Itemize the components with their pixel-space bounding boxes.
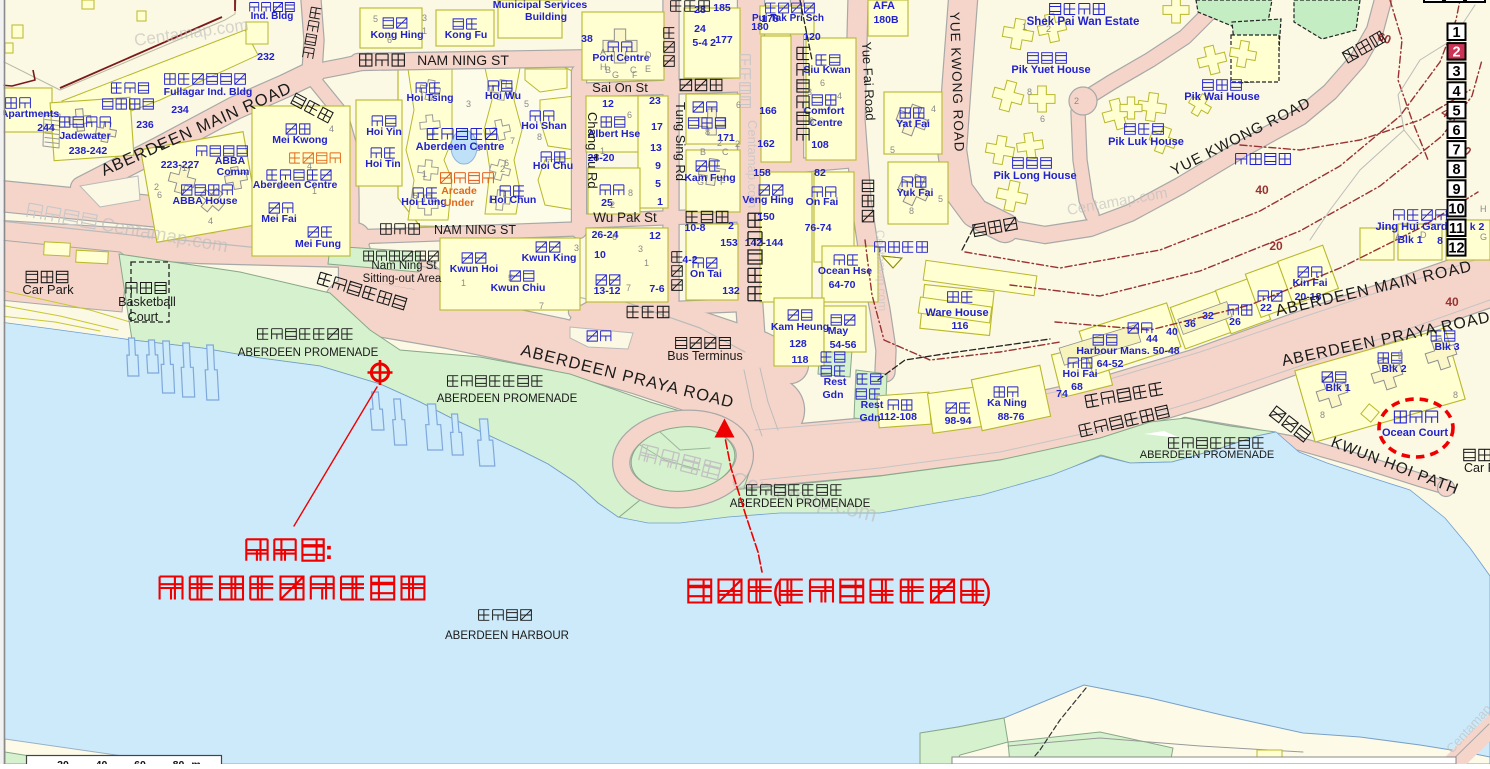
svg-text:112-108: 112-108 [879, 411, 917, 423]
svg-text:Centre: Centre [809, 117, 842, 129]
svg-text:8: 8 [705, 127, 710, 137]
svg-text:Rest: Rest [824, 376, 847, 388]
svg-text:98-94: 98-94 [945, 415, 972, 427]
svg-text:12: 12 [649, 230, 661, 242]
svg-text:May: May [828, 325, 849, 337]
svg-text:6: 6 [736, 100, 741, 110]
svg-text:36: 36 [1184, 318, 1196, 330]
svg-text::: : [325, 535, 334, 565]
svg-text:8: 8 [1453, 390, 1458, 400]
svg-text:2: 2 [1074, 96, 1079, 106]
svg-text:5: 5 [655, 178, 661, 190]
svg-text:7: 7 [539, 301, 544, 311]
svg-text:Mei Kwong: Mei Kwong [272, 134, 327, 146]
svg-text:Gdn: Gdn [823, 389, 844, 401]
svg-text:ABERDEEN PROMENADE: ABERDEEN PROMENADE [1140, 449, 1274, 461]
svg-text:8: 8 [1437, 235, 1443, 247]
svg-text:m: m [191, 759, 200, 764]
svg-text:108: 108 [811, 139, 829, 151]
svg-text:6: 6 [504, 158, 509, 168]
svg-text:3: 3 [422, 13, 427, 23]
svg-text:180: 180 [751, 21, 769, 33]
svg-text:2: 2 [610, 200, 615, 210]
svg-text:162: 162 [757, 138, 775, 150]
svg-text:8: 8 [1320, 410, 1325, 420]
svg-text:22: 22 [1260, 302, 1272, 314]
svg-text:Pik Wai House: Pik Wai House [1184, 91, 1259, 103]
svg-text:9: 9 [1452, 182, 1460, 198]
svg-text:6: 6 [820, 78, 825, 88]
svg-text:): ) [982, 575, 991, 606]
svg-text:Ocean Hse: Ocean Hse [818, 265, 872, 277]
svg-text:E: E [645, 64, 651, 74]
svg-text:4: 4 [307, 161, 312, 171]
svg-text:40: 40 [96, 759, 108, 764]
svg-text:8: 8 [628, 188, 633, 198]
svg-text:40: 40 [1445, 295, 1459, 309]
svg-text:Yat Fai: Yat Fai [896, 118, 930, 130]
svg-text:2: 2 [728, 220, 734, 232]
svg-text:Arcade: Arcade [441, 185, 477, 197]
svg-text:120: 120 [803, 31, 821, 43]
svg-text:5: 5 [1398, 354, 1403, 364]
svg-text:5: 5 [890, 145, 895, 155]
svg-text:7: 7 [510, 136, 515, 146]
svg-text:4: 4 [208, 216, 213, 226]
svg-text:4: 4 [329, 124, 334, 134]
svg-text:ABERDEEN PROMENADE: ABERDEEN PROMENADE [730, 498, 871, 510]
svg-text:Court: Court [128, 310, 159, 324]
svg-text:Hoi Yin: Hoi Yin [366, 126, 402, 138]
svg-text:23: 23 [649, 95, 661, 107]
svg-text:Blk 1: Blk 1 [1325, 382, 1350, 394]
svg-text:Building: Building [525, 11, 567, 23]
svg-text:C: C [722, 147, 729, 157]
svg-text:Hoi Tsing: Hoi Tsing [406, 92, 453, 104]
svg-text:118: 118 [792, 354, 809, 366]
svg-text:Kong Fu: Kong Fu [445, 29, 488, 41]
svg-text:G: G [612, 70, 619, 80]
svg-text:Hoi Chu: Hoi Chu [533, 160, 573, 172]
svg-text:180B: 180B [873, 14, 899, 26]
svg-text:10-8: 10-8 [684, 222, 705, 234]
svg-text:Blk 1: Blk 1 [1397, 234, 1422, 246]
svg-text:54-56: 54-56 [830, 339, 857, 351]
svg-text:6: 6 [1040, 114, 1045, 124]
svg-text:116: 116 [952, 320, 969, 332]
svg-text:H: H [1480, 204, 1487, 214]
svg-text:Hoi Fai: Hoi Fai [1062, 368, 1097, 380]
svg-text:Sitting-out Area: Sitting-out Area [363, 273, 442, 285]
svg-text:Aberdeen Centre: Aberdeen Centre [416, 141, 505, 153]
svg-text:10: 10 [1448, 201, 1464, 217]
svg-text:Jadewater: Jadewater [59, 130, 110, 142]
svg-text:Kwun Hoi: Kwun Hoi [450, 263, 498, 275]
svg-text:1: 1 [600, 146, 605, 156]
svg-text:Shek Pai Wan Estate: Shek Pai Wan Estate [1027, 16, 1140, 28]
svg-text:3: 3 [466, 99, 471, 109]
svg-text:8: 8 [1452, 162, 1460, 178]
svg-text:Nam Ning St: Nam Ning St [371, 260, 437, 272]
svg-text:7: 7 [626, 283, 631, 293]
svg-text:24: 24 [694, 23, 706, 35]
svg-text:1: 1 [461, 278, 466, 288]
svg-text:Car P: Car P [1464, 461, 1490, 475]
svg-text:B: B [700, 147, 706, 157]
svg-text:128: 128 [789, 338, 807, 350]
svg-text:20: 20 [57, 759, 69, 764]
svg-text:6: 6 [1452, 123, 1460, 139]
svg-text:Kin Fai: Kin Fai [1292, 277, 1327, 289]
svg-text:2: 2 [1046, 24, 1051, 34]
svg-text:Kwun Chiu: Kwun Chiu [491, 282, 546, 294]
svg-text:38: 38 [581, 33, 593, 45]
svg-text:10: 10 [594, 249, 606, 261]
svg-text:On Fai: On Fai [806, 196, 839, 208]
svg-text:12: 12 [1448, 241, 1464, 257]
svg-text:Wu Pak St: Wu Pak St [593, 210, 657, 225]
svg-text:Bus Terminus: Bus Terminus [667, 349, 743, 363]
svg-text:NAM NING ST: NAM NING ST [417, 52, 509, 68]
svg-text:Veng Hing: Veng Hing [742, 194, 793, 206]
svg-text:26: 26 [1229, 316, 1241, 328]
svg-text:Car Park: Car Park [22, 282, 74, 297]
svg-text:Gdn: Gdn [860, 412, 881, 424]
svg-text:Blk 2: Blk 2 [1381, 363, 1406, 375]
svg-text:11: 11 [1449, 221, 1464, 237]
svg-text:177: 177 [715, 34, 733, 46]
svg-text:1: 1 [277, 181, 282, 191]
svg-text:17: 17 [651, 121, 663, 133]
svg-text:Hoi Lung: Hoi Lung [401, 196, 447, 208]
svg-text:5: 5 [1452, 103, 1460, 119]
svg-text:32: 32 [1202, 310, 1214, 322]
svg-text:Mei Fai: Mei Fai [261, 213, 297, 225]
svg-text:6: 6 [612, 232, 617, 242]
svg-text:4: 4 [1452, 84, 1460, 100]
svg-text:G: G [1480, 232, 1487, 242]
svg-text:238-242: 238-242 [69, 145, 108, 157]
svg-text:Ocean Court: Ocean Court [1382, 427, 1448, 439]
svg-text:Ka Ning: Ka Ning [987, 397, 1027, 409]
svg-text:Sai On St: Sai On St [592, 80, 648, 95]
svg-text:5: 5 [476, 143, 481, 153]
svg-text:A: A [600, 47, 606, 57]
svg-text:64-70: 64-70 [829, 279, 856, 291]
svg-text:4: 4 [837, 91, 842, 101]
svg-text:76-74: 76-74 [805, 222, 832, 234]
svg-text:40: 40 [1166, 326, 1178, 338]
svg-text:On Tai: On Tai [690, 268, 722, 280]
svg-text:1: 1 [312, 186, 317, 196]
svg-text:Rest: Rest [861, 399, 884, 411]
svg-text:8: 8 [537, 132, 542, 142]
svg-text:Kong Hing: Kong Hing [370, 29, 423, 41]
svg-text:Kam Heung: Kam Heung [771, 321, 829, 333]
svg-text:13-12: 13-12 [594, 285, 621, 297]
svg-text:1: 1 [1452, 25, 1460, 41]
svg-text:Pik Long House: Pik Long House [993, 170, 1076, 182]
svg-text:Aberdeen Centre: Aberdeen Centre [253, 179, 338, 191]
svg-text:236: 236 [136, 119, 154, 131]
svg-text:Yuk Fai: Yuk Fai [897, 187, 934, 199]
svg-text:Hoi Tin: Hoi Tin [365, 158, 400, 170]
svg-text:AFA: AFA [873, 0, 895, 12]
svg-text:Pik Luk House: Pik Luk House [1108, 136, 1184, 148]
svg-text:166: 166 [759, 105, 777, 117]
svg-text:Blk 3: Blk 3 [1434, 341, 1459, 353]
svg-text:4-2: 4-2 [682, 254, 697, 266]
svg-text:158: 158 [753, 167, 771, 179]
svg-text:Hoi Wu: Hoi Wu [485, 90, 521, 102]
svg-text:Municipal Services: Municipal Services [493, 0, 588, 11]
svg-text:Kwun King: Kwun King [522, 252, 577, 264]
svg-text:20: 20 [1269, 239, 1283, 253]
svg-text:234: 234 [171, 104, 189, 116]
svg-text:8: 8 [809, 116, 814, 126]
svg-text:185: 185 [713, 2, 731, 14]
svg-text:6: 6 [387, 35, 392, 45]
svg-text:1: 1 [422, 169, 427, 179]
svg-text:8: 8 [1027, 87, 1032, 97]
svg-text:A: A [1395, 232, 1401, 242]
svg-text:64-52: 64-52 [1097, 358, 1124, 370]
svg-text:Pik Yuet House: Pik Yuet House [1011, 64, 1090, 76]
svg-text:ABERDEEN PROMENADE: ABERDEEN PROMENADE [238, 347, 379, 359]
svg-text:8: 8 [909, 206, 914, 216]
svg-text:153: 153 [720, 237, 738, 249]
svg-text:Fullagar Ind. Bldg: Fullagar Ind. Bldg [164, 86, 253, 98]
svg-text:Chang Tu Rd: Chang Tu Rd [585, 112, 600, 189]
svg-text:5: 5 [373, 14, 378, 24]
svg-text:223-227: 223-227 [161, 159, 200, 171]
svg-text:80: 80 [173, 759, 185, 764]
svg-text:ABERDEEN HARBOUR: ABERDEEN HARBOUR [445, 630, 569, 642]
svg-text:NAM NING ST: NAM NING ST [434, 223, 516, 237]
svg-text:232: 232 [257, 51, 275, 63]
svg-text:2: 2 [735, 139, 740, 149]
svg-text:7: 7 [1452, 143, 1460, 159]
svg-text:13: 13 [650, 142, 662, 154]
svg-text:D: D [1420, 230, 1427, 240]
svg-text:5: 5 [508, 273, 513, 283]
svg-text:68: 68 [1071, 381, 1083, 393]
svg-text:Hoi Shan: Hoi Shan [521, 120, 567, 132]
svg-text:40: 40 [1255, 183, 1269, 197]
svg-text:1: 1 [644, 258, 649, 268]
svg-text:74: 74 [1056, 388, 1068, 400]
svg-text:Mei Fung: Mei Fung [295, 238, 341, 250]
svg-text:2: 2 [154, 182, 159, 192]
svg-text:Apartments: Apartments [1, 108, 60, 120]
svg-text:5-4: 5-4 [692, 37, 707, 49]
svg-text:5: 5 [524, 99, 529, 109]
svg-text:244: 244 [37, 122, 55, 134]
svg-text:Ind. Bldg: Ind. Bldg [251, 11, 294, 22]
svg-text:Kam Fung: Kam Fung [684, 172, 735, 184]
svg-text:1: 1 [422, 26, 427, 36]
svg-text:Siu Kwan: Siu Kwan [803, 64, 850, 76]
svg-text:82: 82 [814, 167, 826, 179]
svg-text:88-76: 88-76 [998, 411, 1025, 423]
svg-text:Harbour Mans. 50-48: Harbour Mans. 50-48 [1076, 345, 1179, 357]
svg-text:ABERDEEN PROMENADE: ABERDEEN PROMENADE [437, 393, 578, 405]
svg-text:9: 9 [655, 160, 661, 172]
svg-text:1: 1 [182, 163, 187, 173]
svg-text:D: D [645, 50, 652, 60]
svg-text:3: 3 [574, 243, 579, 253]
svg-text:3: 3 [807, 87, 812, 97]
svg-text:2: 2 [1452, 45, 1460, 61]
svg-text:Basketball: Basketball [118, 295, 176, 309]
svg-text:F: F [632, 70, 638, 80]
svg-text:ABBA House: ABBA House [173, 195, 238, 207]
svg-text:3: 3 [638, 244, 643, 254]
svg-text:7-6: 7-6 [649, 283, 664, 295]
svg-text:G: G [697, 177, 704, 187]
svg-text:3: 3 [1452, 64, 1460, 80]
svg-text:4: 4 [931, 104, 936, 114]
svg-text:H: H [600, 62, 607, 72]
svg-text:1: 1 [657, 196, 663, 208]
svg-text:Under: Under [444, 197, 474, 209]
svg-text:Hoi Chun: Hoi Chun [490, 194, 537, 206]
svg-text:F: F [720, 177, 726, 187]
svg-text:5: 5 [413, 191, 418, 201]
svg-text:Comm: Comm [217, 166, 250, 178]
svg-text:Ware House: Ware House [925, 307, 988, 319]
svg-text:5: 5 [938, 194, 943, 204]
svg-text:132: 132 [722, 285, 740, 297]
svg-text:12: 12 [602, 98, 614, 110]
svg-text:1: 1 [1022, 22, 1027, 32]
svg-text:44: 44 [1146, 333, 1158, 345]
svg-text:Tung Sing Rd: Tung Sing Rd [673, 102, 688, 181]
svg-text:6: 6 [627, 110, 632, 120]
svg-text:60: 60 [134, 759, 146, 764]
